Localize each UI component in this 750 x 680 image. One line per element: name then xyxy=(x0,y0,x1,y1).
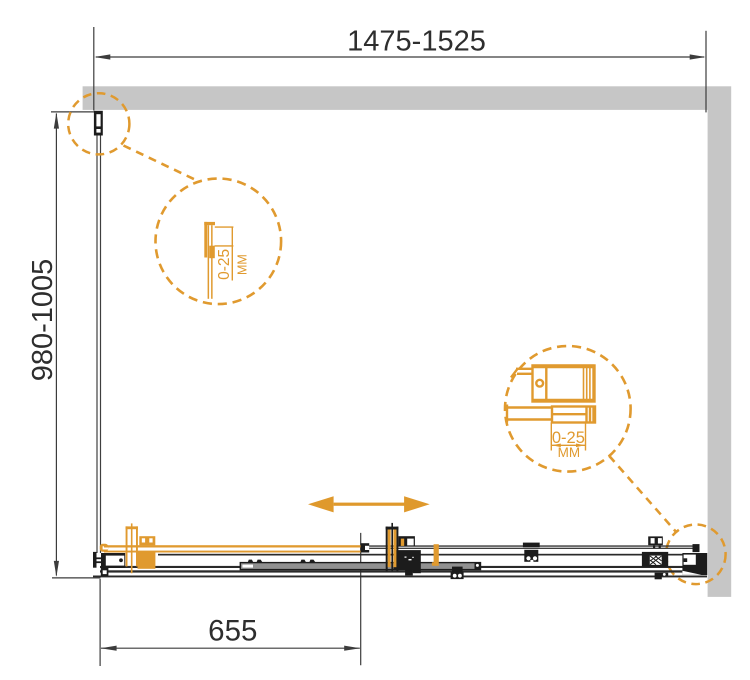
svg-text:ММ: ММ xyxy=(558,445,581,460)
svg-text:980-1005: 980-1005 xyxy=(27,259,59,382)
svg-text:0-25: 0-25 xyxy=(216,249,233,280)
svg-text:ММ: ММ xyxy=(235,254,249,275)
svg-text:1475-1525: 1475-1525 xyxy=(347,25,486,57)
svg-text:655: 655 xyxy=(208,615,257,648)
